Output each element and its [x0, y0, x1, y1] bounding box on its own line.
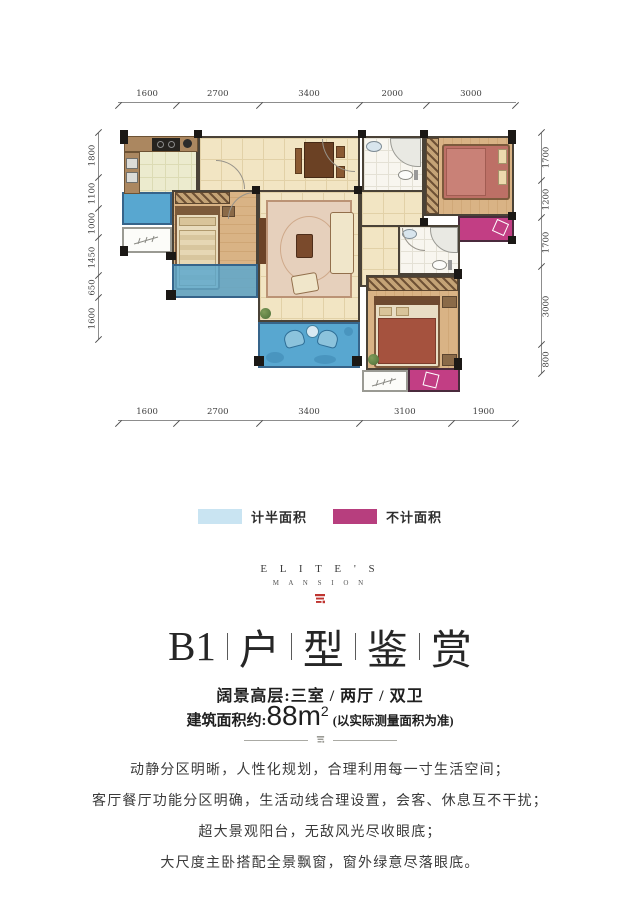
balcony-plant-icon [344, 327, 353, 336]
toilet-icon [398, 170, 413, 180]
title-segment: B1 [168, 622, 216, 670]
toilet-tank-icon [448, 260, 452, 270]
dim-label: 1700 [543, 232, 552, 254]
dimension-chain-right: 1700120017003000800 [538, 133, 556, 373]
dim-tick [115, 102, 122, 109]
balcony-plant-icon [266, 352, 284, 363]
dim-segment: 1100 [84, 178, 102, 209]
description-line: 动静分区明晰，人性化规划，合理利用每一寸生活空间； [0, 755, 640, 786]
burner-icon [157, 141, 164, 148]
dim-segment: 1700 [538, 133, 556, 181]
area-line: 建筑面积约: 88m 2 (以实际测量面积为准) [0, 700, 640, 732]
dim-segment: 2700 [176, 90, 259, 106]
dim-label: 800 [542, 351, 551, 367]
wall-pier [166, 290, 176, 300]
balcony-table-icon [306, 325, 319, 338]
nightstand-icon [442, 296, 457, 308]
dim-label: 1100 [89, 183, 98, 205]
toilet-icon [432, 260, 447, 270]
dimension-chain-bottom: 16002700340031001900 [118, 408, 516, 424]
wall-pier [354, 186, 362, 194]
dim-segment: 1600 [118, 90, 176, 106]
brand-name: E L I T E ' S [0, 563, 640, 575]
pillow-icon [379, 307, 392, 316]
wall-pier [166, 252, 176, 260]
dim-label: 2700 [207, 408, 229, 417]
balcony-plant-icon [314, 355, 336, 364]
section-divider [0, 736, 640, 744]
wall-pier [252, 186, 260, 194]
title-segment: 鉴 [367, 616, 408, 676]
dim-label: 1600 [136, 408, 158, 417]
wall-pier [508, 130, 516, 144]
washbasin-icon [366, 141, 382, 152]
dim-label: 1200 [543, 189, 552, 211]
page-title: B1户型鉴赏 [0, 616, 640, 676]
pillow-icon [396, 307, 409, 316]
dim-label: 1600 [136, 90, 158, 99]
area-value: 88m [266, 700, 320, 732]
blanket-icon [446, 148, 486, 196]
wall-pier [508, 212, 516, 220]
title-segment: 赏 [431, 616, 472, 676]
dim-label: 3400 [298, 90, 320, 99]
dim-segment: 2700 [176, 408, 259, 424]
divider-line [333, 740, 397, 741]
wardrobe-icon [368, 277, 458, 291]
dim-label: 3100 [394, 408, 416, 417]
dim-label: 2000 [381, 90, 403, 99]
dim-label: 3000 [460, 90, 482, 99]
wall-pier [508, 236, 516, 244]
wall-pier [420, 218, 428, 226]
dim-segment: 1000 [84, 209, 102, 238]
description-line: 超大景观阳台，无敌风光尽收眼底； [0, 817, 640, 848]
sink-icon [126, 158, 138, 169]
dim-segment: 3400 [259, 90, 358, 106]
plant-icon [368, 354, 379, 365]
dim-segment: 3000 [426, 90, 516, 106]
dim-segment: 3000 [538, 267, 556, 346]
area-superscript: 2 [321, 703, 329, 719]
legend-label: 不计面积 [386, 507, 442, 526]
dim-segment: 1200 [538, 181, 556, 218]
divider-logo-icon [316, 736, 325, 744]
title-separator [419, 633, 420, 660]
description-line: 大尺度主卧搭配全景飘窗，窗外绿意尽落眼底。 [0, 848, 640, 879]
toilet-tank-icon [414, 170, 418, 180]
burner-icon [168, 141, 175, 148]
bay-window-half-area-left [122, 192, 172, 225]
dimension-chain-top: 16002700340020003000 [118, 90, 516, 106]
description: 动静分区明晰，人性化规划，合理利用每一寸生活空间；客厅餐厅功能分区明确，生活动线… [0, 755, 640, 879]
plant-icon [260, 308, 271, 319]
divider-line [244, 740, 308, 741]
dim-label: 1450 [89, 246, 98, 268]
pillow-icon [179, 217, 216, 226]
pillow-icon [498, 170, 507, 185]
title-separator [227, 633, 228, 660]
dim-segment: 1800 [84, 133, 102, 178]
dim-segment: 1600 [118, 408, 176, 424]
brand-logo-icon [0, 592, 640, 610]
wardrobe-icon [175, 192, 230, 204]
wall-pier [120, 130, 128, 144]
area-note: (以实际测量面积为准) [333, 710, 454, 729]
dim-label: 3000 [543, 295, 552, 317]
legend-swatch [198, 509, 242, 524]
sofa-icon [330, 212, 354, 274]
description-line: 客厅餐厅功能分区明确，生活动线合理设置，会客、休息互不干扰； [0, 786, 640, 817]
legend-swatch [333, 509, 377, 524]
dim-label: 2700 [207, 90, 229, 99]
dim-tick [115, 420, 122, 427]
title-separator [355, 633, 356, 660]
bench-icon [295, 148, 302, 174]
dim-segment: 2000 [359, 90, 426, 106]
dim-label: 1000 [89, 213, 98, 235]
brand-block: E L I T E ' S M A N S I O N [0, 563, 640, 610]
legend-item: 计半面积 [198, 507, 307, 526]
dim-label: 1700 [543, 146, 552, 168]
bay-window-glyph-icon [132, 234, 160, 246]
dimension-chain-left: 18001100100014506501600 [84, 133, 102, 339]
coffee-table-icon [296, 234, 313, 258]
dim-segment: 1450 [84, 238, 102, 276]
dim-segment: 800 [538, 345, 556, 373]
title-segment: 型 [303, 616, 344, 676]
kitchen-fixture-icon [183, 139, 192, 148]
wall-pier [194, 130, 202, 138]
title-separator [291, 633, 292, 660]
room-hallway [360, 190, 424, 227]
wall-pier [454, 358, 462, 370]
legend-item: 不计面积 [333, 507, 442, 526]
headboard-icon [374, 296, 440, 305]
dim-tick [95, 129, 102, 136]
area-label: 建筑面积约: [186, 709, 266, 730]
legend: 计半面积不计面积 [0, 507, 640, 526]
tv-cabinet-icon [259, 218, 266, 264]
blanket-icon [378, 318, 436, 364]
bay-window-glyph-icon [370, 376, 398, 388]
dim-label: 1900 [473, 408, 495, 417]
dim-segment: 1700 [538, 218, 556, 266]
wall-pier [420, 130, 428, 138]
dim-segment: 1900 [451, 408, 516, 424]
dim-segment: 1600 [84, 298, 102, 339]
dim-label: 1600 [89, 308, 98, 330]
wall-pier [352, 356, 362, 366]
wall-pier [358, 130, 366, 138]
dim-label: 1800 [89, 145, 98, 167]
dim-segment: 3100 [359, 408, 451, 424]
floor-plan [118, 128, 516, 400]
wall-pier [120, 246, 128, 256]
title-segment: 户 [239, 616, 280, 676]
wardrobe-icon [426, 138, 439, 214]
dim-tick [538, 129, 545, 136]
dim-label: 3400 [298, 408, 320, 417]
wall-pier [454, 269, 462, 279]
bay-window-half-area-bedroom [172, 264, 258, 298]
headboard-icon [175, 206, 220, 215]
dim-label: 650 [88, 279, 97, 295]
wall-pier [254, 356, 264, 366]
dim-segment: 3400 [259, 408, 358, 424]
page: 16002700340020003000 1600270034003100190… [0, 0, 640, 920]
sink-icon [126, 172, 138, 183]
brand-subname: M A N S I O N [0, 579, 640, 587]
legend-label: 计半面积 [251, 507, 307, 526]
pillow-icon [498, 149, 507, 164]
